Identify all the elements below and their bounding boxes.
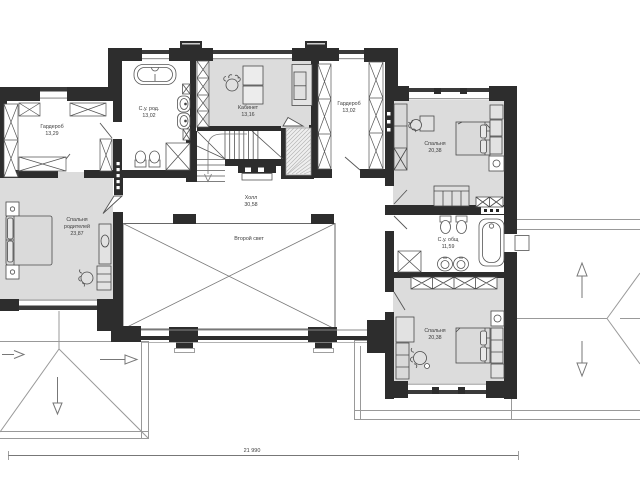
svg-text:13,02: 13,02	[142, 113, 155, 119]
svg-text:С.у. общ: С.у. общ	[438, 237, 459, 243]
svg-text:23,87: 23,87	[70, 231, 83, 237]
svg-text:Кабинет: Кабинет	[238, 105, 259, 111]
svg-text:С.у. род.: С.у. род.	[139, 106, 160, 112]
svg-text:Спальня: Спальня	[424, 328, 445, 334]
svg-text:30,58: 30,58	[244, 202, 257, 208]
svg-text:родителей: родителей	[64, 223, 90, 230]
svg-text:13,16: 13,16	[241, 112, 254, 118]
svg-text:Спальня: Спальня	[66, 217, 87, 223]
svg-text:13,02: 13,02	[342, 108, 355, 114]
svg-text:11,59: 11,59	[442, 244, 455, 250]
svg-text:20,38: 20,38	[428, 335, 441, 341]
svg-text:Гардероб: Гардероб	[40, 124, 63, 130]
svg-text:Второй свет: Второй свет	[234, 235, 264, 242]
svg-text:13,29: 13,29	[45, 131, 58, 137]
svg-text:21 990: 21 990	[244, 448, 261, 454]
svg-text:Холл: Холл	[245, 195, 257, 201]
svg-text:20,38: 20,38	[428, 148, 441, 154]
svg-text:Спальня: Спальня	[424, 141, 445, 147]
svg-text:Гардероб: Гардероб	[337, 101, 360, 107]
